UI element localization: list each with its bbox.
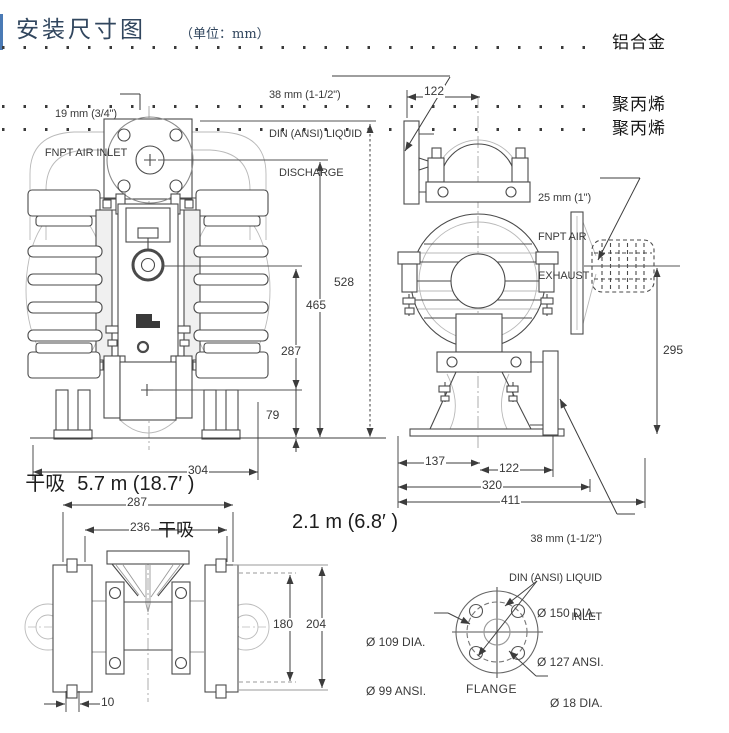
air-inlet-callout: 19 mm (3/4") FNPT AIR INLET	[30, 82, 142, 186]
installation-dimension-sheet: 安装尺寸图 （单位：mm） 铝合金 聚丙烯 聚丙烯 19 mm (3/4") F…	[0, 0, 729, 733]
discharge-size: 38 mm (1-1/2")	[269, 89, 362, 102]
unit-note: （单位：mm）	[180, 28, 270, 42]
exhaust-callout: 25 mm (1") FNPT AIR EXHAUST	[538, 166, 591, 309]
flange-hole-callout: Ø 18 DIA. Ø 15 ANSI.	[550, 663, 610, 733]
dim-side-411: 411	[500, 494, 521, 507]
dim-side-122-top: 122	[423, 85, 445, 98]
bottom-view-drawing	[25, 551, 269, 702]
flange-d109: Ø 109 DIA.	[366, 634, 426, 650]
dim-bottom-180: 180	[272, 618, 294, 631]
exhaust-text1: FNPT AIR	[538, 231, 591, 244]
page-title: 安装尺寸图	[16, 18, 146, 43]
dim-bottom-10: 10	[100, 696, 115, 709]
dim-front-287: 287	[280, 345, 302, 358]
suction-front-label: 干吸	[25, 471, 65, 495]
dim-front-465: 465	[305, 299, 327, 312]
dim-front-79: 79	[265, 409, 280, 422]
dim-side-122: 122	[498, 462, 520, 475]
dim-bottom-236: 236	[129, 521, 151, 534]
material-label-polypropylene-2: 聚丙烯	[612, 120, 666, 139]
suction-side-value: 2.1 m (6.8′ )	[292, 511, 398, 533]
exhaust-text2: EXHAUST	[538, 270, 591, 283]
flange-d150: Ø 150 DIA.	[537, 605, 604, 621]
exhaust-size: 25 mm (1")	[538, 192, 591, 205]
flange-d18: Ø 18 DIA.	[550, 695, 610, 711]
discharge-text2: DISCHARGE	[279, 167, 362, 180]
suction-front-note: 干吸5.7 m (18.7′ )	[3, 450, 194, 517]
flange-inner-callout: Ø 109 DIA. Ø 99 ANSI.	[366, 602, 426, 732]
dim-side-137: 137	[424, 455, 446, 468]
dim-bottom-204: 204	[305, 618, 327, 631]
inlet-size: 38 mm (1-1/2")	[488, 533, 602, 546]
material-label-polypropylene-1: 聚丙烯	[612, 96, 666, 115]
flange-caption: FLANGE	[466, 681, 517, 697]
discharge-text1: DIN (ANSI) LIQUID	[269, 128, 362, 141]
flange-d99: Ø 99 ANSI.	[366, 683, 426, 699]
suction-front-value: 5.7 m (18.7′ )	[77, 473, 194, 495]
air-inlet-size: 19 mm (3/4")	[30, 108, 142, 121]
discharge-callout: 38 mm (1-1/2") DIN (ANSI) LIQUID DISCHAR…	[269, 63, 362, 206]
air-inlet-text: FNPT AIR INLET	[30, 147, 142, 160]
dim-side-320: 320	[481, 479, 503, 492]
material-label-aluminum: 铝合金	[612, 34, 666, 53]
suction-side-label: 干吸	[158, 516, 194, 542]
dim-side-295: 295	[662, 344, 684, 357]
dim-front-528: 528	[333, 276, 355, 289]
